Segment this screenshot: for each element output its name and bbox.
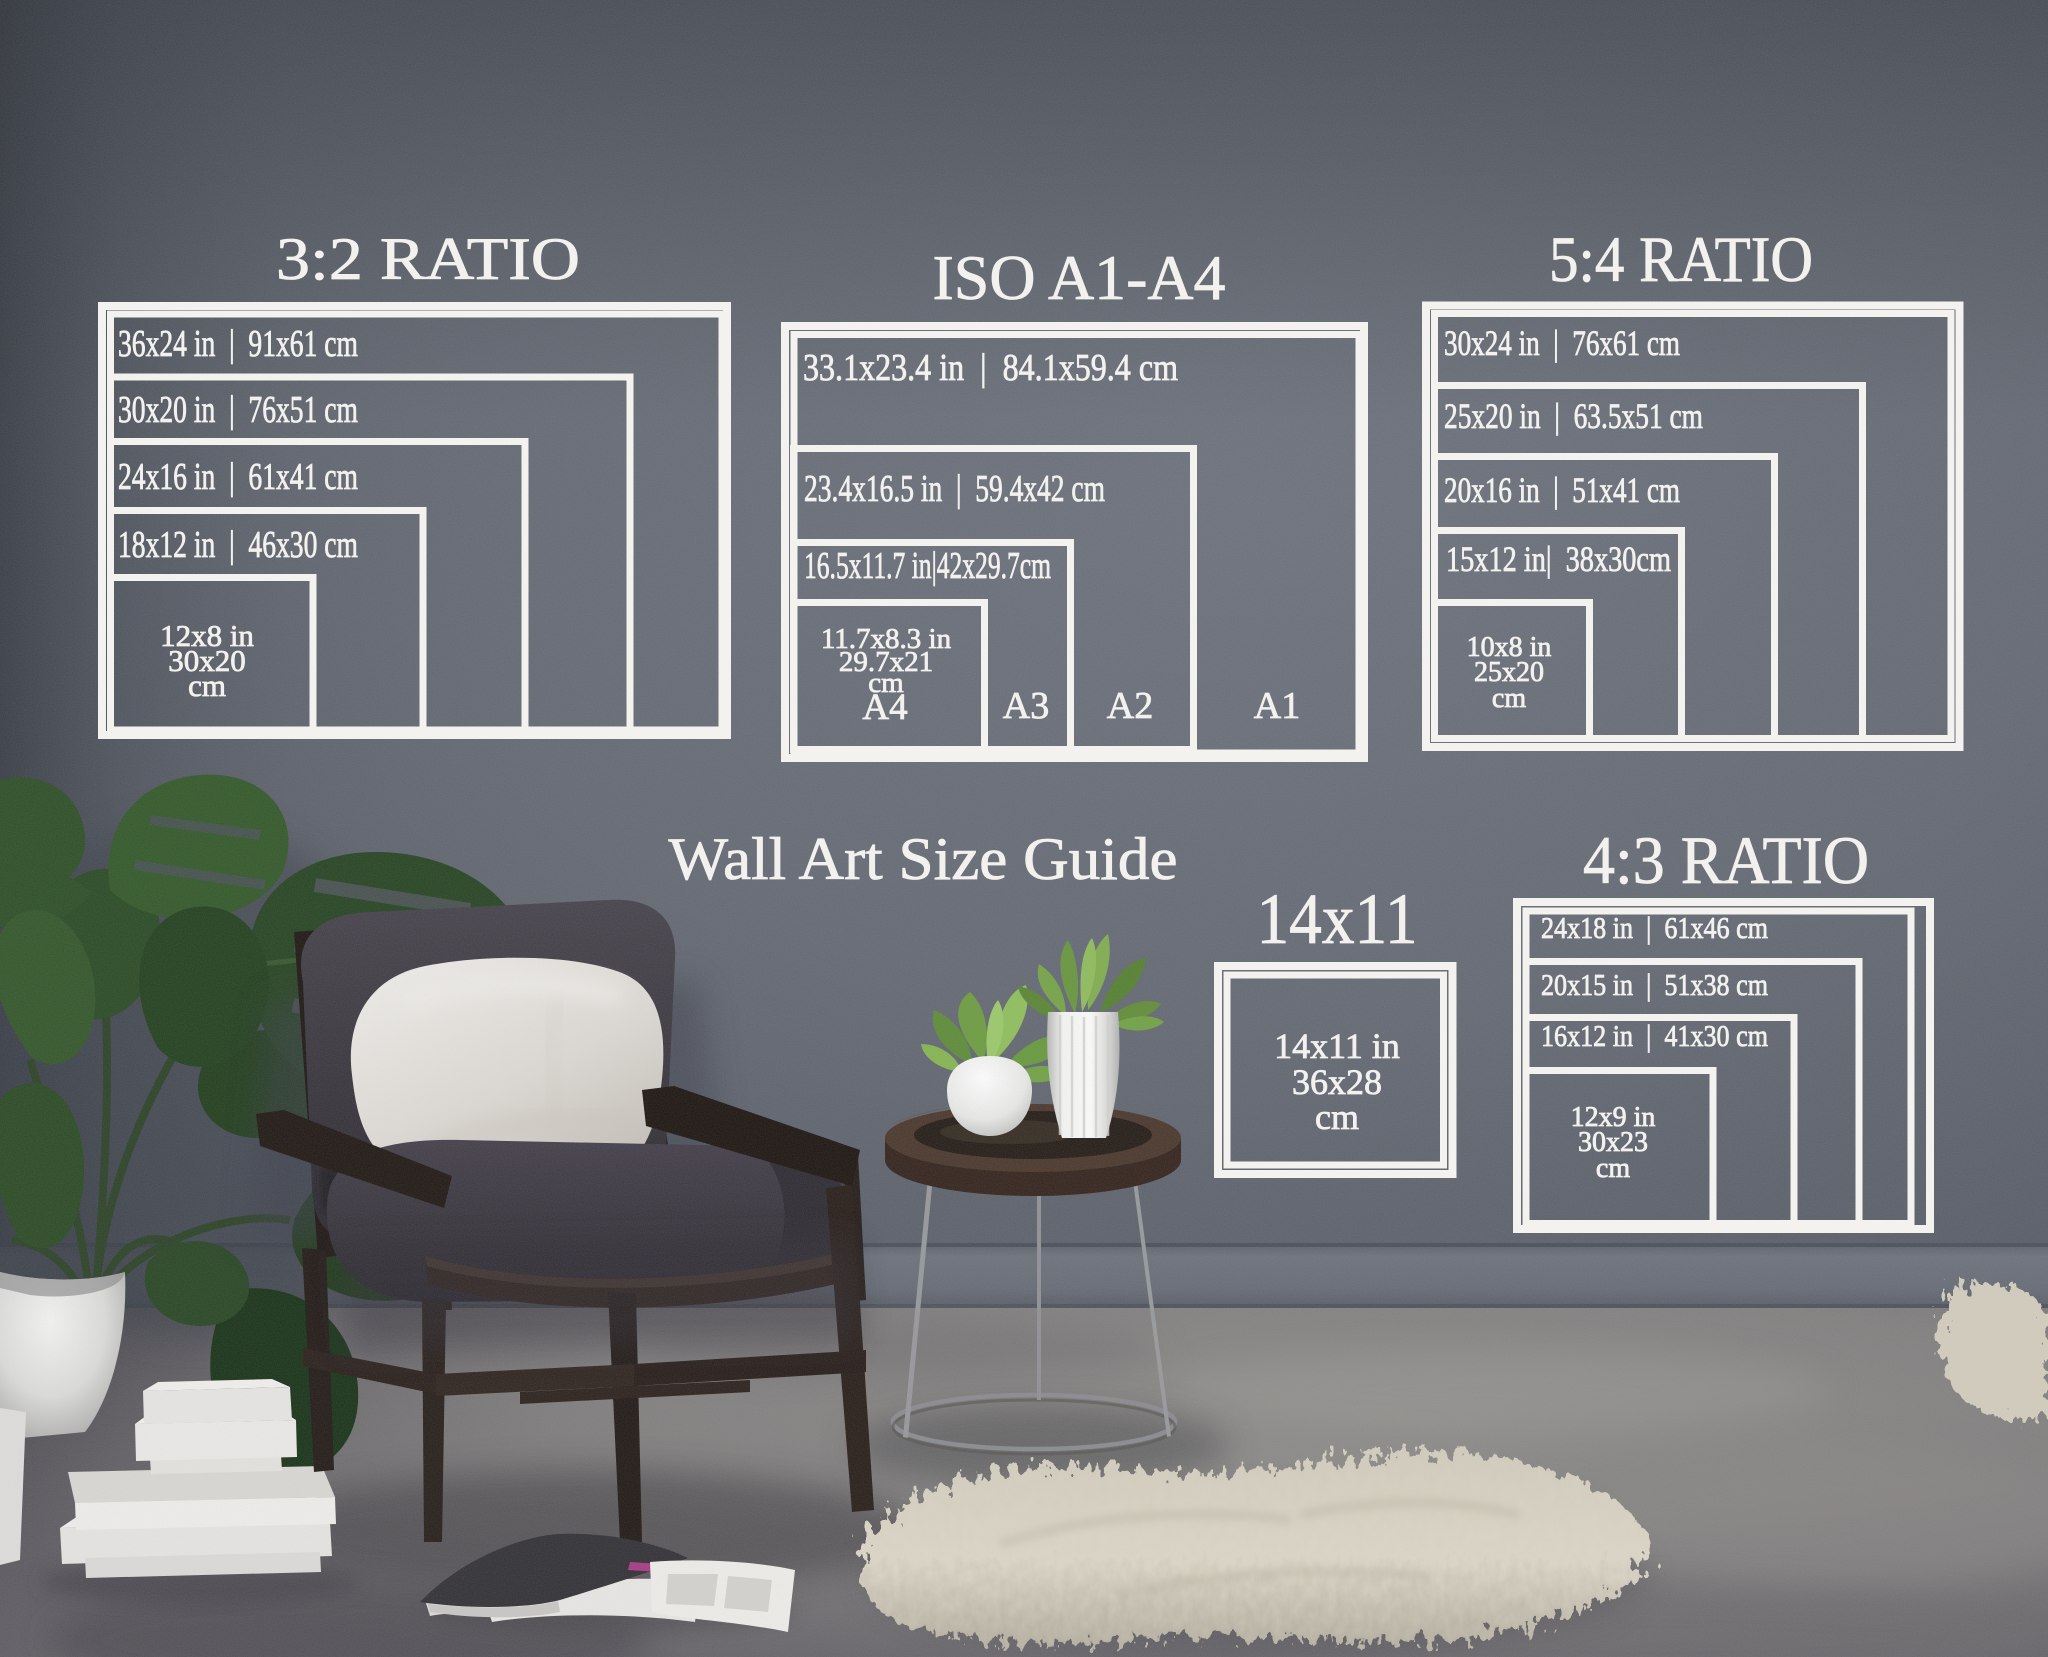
svg-text:5:4 RATIO: 5:4 RATIO bbox=[1549, 224, 1813, 296]
svg-text:20x16 in | 51x41 cm: 20x16 in | 51x41 cm bbox=[1444, 470, 1680, 510]
svg-text:15x12 in| 38x30cm: 15x12 in| 38x30cm bbox=[1446, 539, 1671, 579]
svg-text:A2: A2 bbox=[1107, 685, 1153, 727]
svg-text:24x16 in | 61x41 cm: 24x16 in | 61x41 cm bbox=[118, 456, 358, 498]
svg-text:16x12 in | 41x30 cm: 16x12 in | 41x30 cm bbox=[1541, 1018, 1768, 1053]
svg-text:4:3 RATIO: 4:3 RATIO bbox=[1583, 822, 1869, 898]
svg-text:ISO A1-A4: ISO A1-A4 bbox=[933, 242, 1226, 313]
svg-text:18x12 in | 46x30 cm: 18x12 in | 46x30 cm bbox=[118, 524, 358, 566]
svg-text:30x20 in | 76x51 cm: 30x20 in | 76x51 cm bbox=[118, 389, 358, 431]
svg-text:cm: cm bbox=[1492, 683, 1526, 714]
svg-text:25x20 in | 63.5x51 cm: 25x20 in | 63.5x51 cm bbox=[1444, 396, 1703, 436]
svg-text:33.1x23.4 in | 84.1x59.4 cm: 33.1x23.4 in | 84.1x59.4 cm bbox=[803, 347, 1178, 389]
svg-text:cm: cm bbox=[188, 668, 226, 703]
svg-text:cm: cm bbox=[1315, 1097, 1359, 1137]
svg-text:cm: cm bbox=[1596, 1153, 1630, 1184]
svg-text:14x11 in: 14x11 in bbox=[1274, 1026, 1400, 1066]
svg-text:A4: A4 bbox=[862, 687, 907, 728]
svg-text:A3: A3 bbox=[1003, 685, 1049, 727]
svg-text:Wall Art Size Guide: Wall Art Size Guide bbox=[669, 826, 1178, 892]
svg-text:24x18 in | 61x46 cm: 24x18 in | 61x46 cm bbox=[1541, 910, 1768, 945]
svg-text:30x24 in | 76x61 cm: 30x24 in | 76x61 cm bbox=[1444, 323, 1680, 363]
svg-text:20x15 in | 51x38 cm: 20x15 in | 51x38 cm bbox=[1541, 967, 1768, 1002]
svg-text:14x11: 14x11 bbox=[1257, 879, 1418, 959]
svg-text:23.4x16.5 in | 59.4x42 cm: 23.4x16.5 in | 59.4x42 cm bbox=[804, 468, 1105, 510]
svg-text:3:2 RATIO: 3:2 RATIO bbox=[276, 226, 580, 292]
svg-text:36x24 in | 91x61 cm: 36x24 in | 91x61 cm bbox=[118, 323, 358, 365]
svg-text:36x28: 36x28 bbox=[1292, 1062, 1382, 1102]
svg-text:A1: A1 bbox=[1254, 685, 1300, 727]
svg-text:16.5x11.7 in|42x29.7cm: 16.5x11.7 in|42x29.7cm bbox=[804, 545, 1051, 587]
